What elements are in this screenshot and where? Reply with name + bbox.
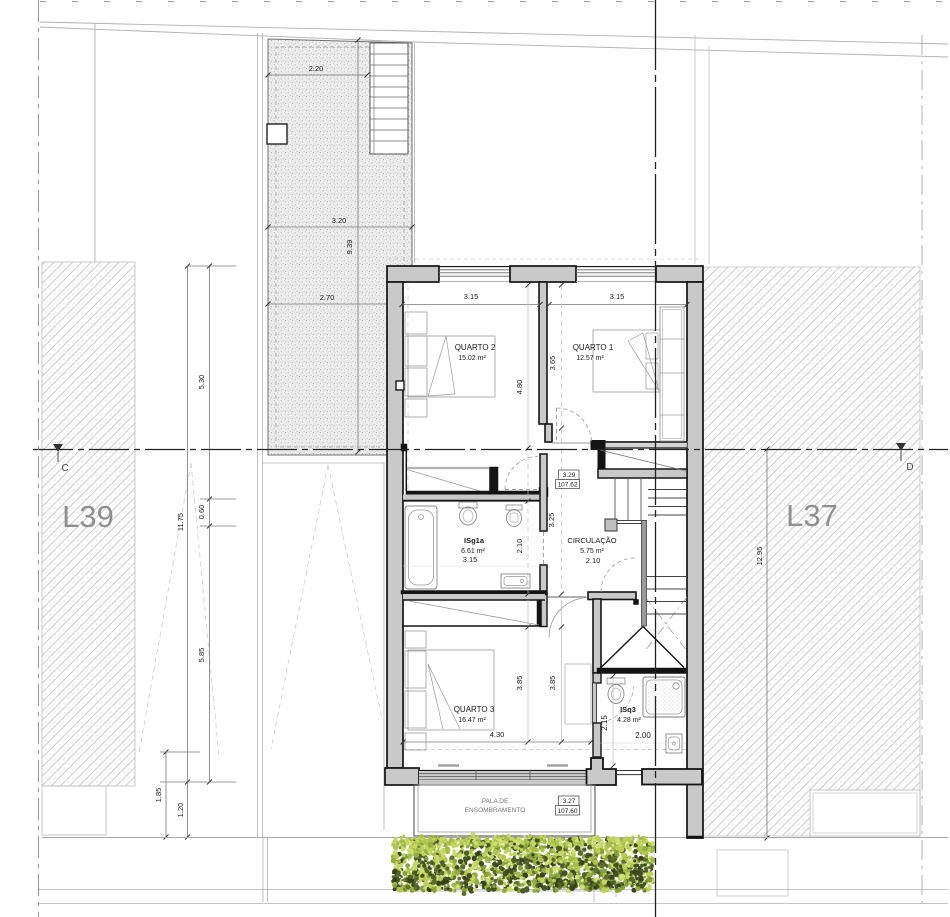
svg-text:D: D [906,462,913,473]
svg-text:3.20: 3.20 [332,216,347,225]
svg-text:6.61 m²: 6.61 m² [461,548,485,555]
svg-text:L39: L39 [62,499,114,534]
svg-text:QUARTO 2: QUARTO 2 [455,343,496,352]
svg-text:3.25: 3.25 [547,513,556,528]
svg-text:3.85: 3.85 [548,676,557,691]
svg-text:4.28 m²: 4.28 m² [617,717,641,724]
svg-text:5.85: 5.85 [197,648,206,663]
svg-text:QUARTO 3: QUARTO 3 [454,705,495,714]
svg-text:2.15: 2.15 [600,715,609,731]
svg-text:5.75 m²: 5.75 m² [580,548,604,555]
svg-text:11.75: 11.75 [176,513,185,531]
svg-text:2.70: 2.70 [320,293,335,302]
svg-text:3.27: 3.27 [563,798,576,805]
svg-text:4.30: 4.30 [490,730,505,739]
svg-text:PALA DE: PALA DE [482,798,509,805]
svg-text:12.95: 12.95 [755,547,764,566]
svg-text:1.20: 1.20 [176,803,185,818]
svg-text:16.47 m²: 16.47 m² [458,717,486,724]
svg-text:3.15: 3.15 [610,292,625,301]
svg-text:CIRCULAÇÃO: CIRCULAÇÃO [567,536,616,545]
svg-text:2.20: 2.20 [309,64,324,73]
svg-text:3.15: 3.15 [463,555,478,564]
svg-text:3.85: 3.85 [515,676,524,691]
svg-text:L37: L37 [786,498,838,533]
svg-text:ISq3: ISq3 [620,705,636,714]
svg-text:C: C [61,463,68,474]
svg-text:1.85: 1.85 [154,788,163,803]
svg-text:107.60: 107.60 [558,808,578,815]
svg-text:9.39: 9.39 [345,240,354,255]
svg-text:3.29: 3.29 [563,472,576,479]
svg-text:3.65: 3.65 [548,356,557,371]
svg-text:3.15: 3.15 [464,292,479,301]
svg-text:5.30: 5.30 [197,375,206,390]
svg-text:2.00: 2.00 [635,731,651,740]
svg-text:4.80: 4.80 [515,380,524,395]
svg-text:ENSOMBRAMENTO: ENSOMBRAMENTO [465,807,526,814]
svg-text:2.10: 2.10 [515,539,524,554]
svg-text:0.60: 0.60 [197,505,206,520]
svg-text:2.10: 2.10 [586,556,601,565]
svg-text:ISg1a: ISg1a [464,536,485,545]
svg-text:12.57 m²: 12.57 m² [576,355,604,362]
svg-text:15.02 m²: 15.02 m² [458,355,486,362]
svg-text:QUARTO 1: QUARTO 1 [573,343,614,352]
svg-text:107.62: 107.62 [558,482,578,489]
